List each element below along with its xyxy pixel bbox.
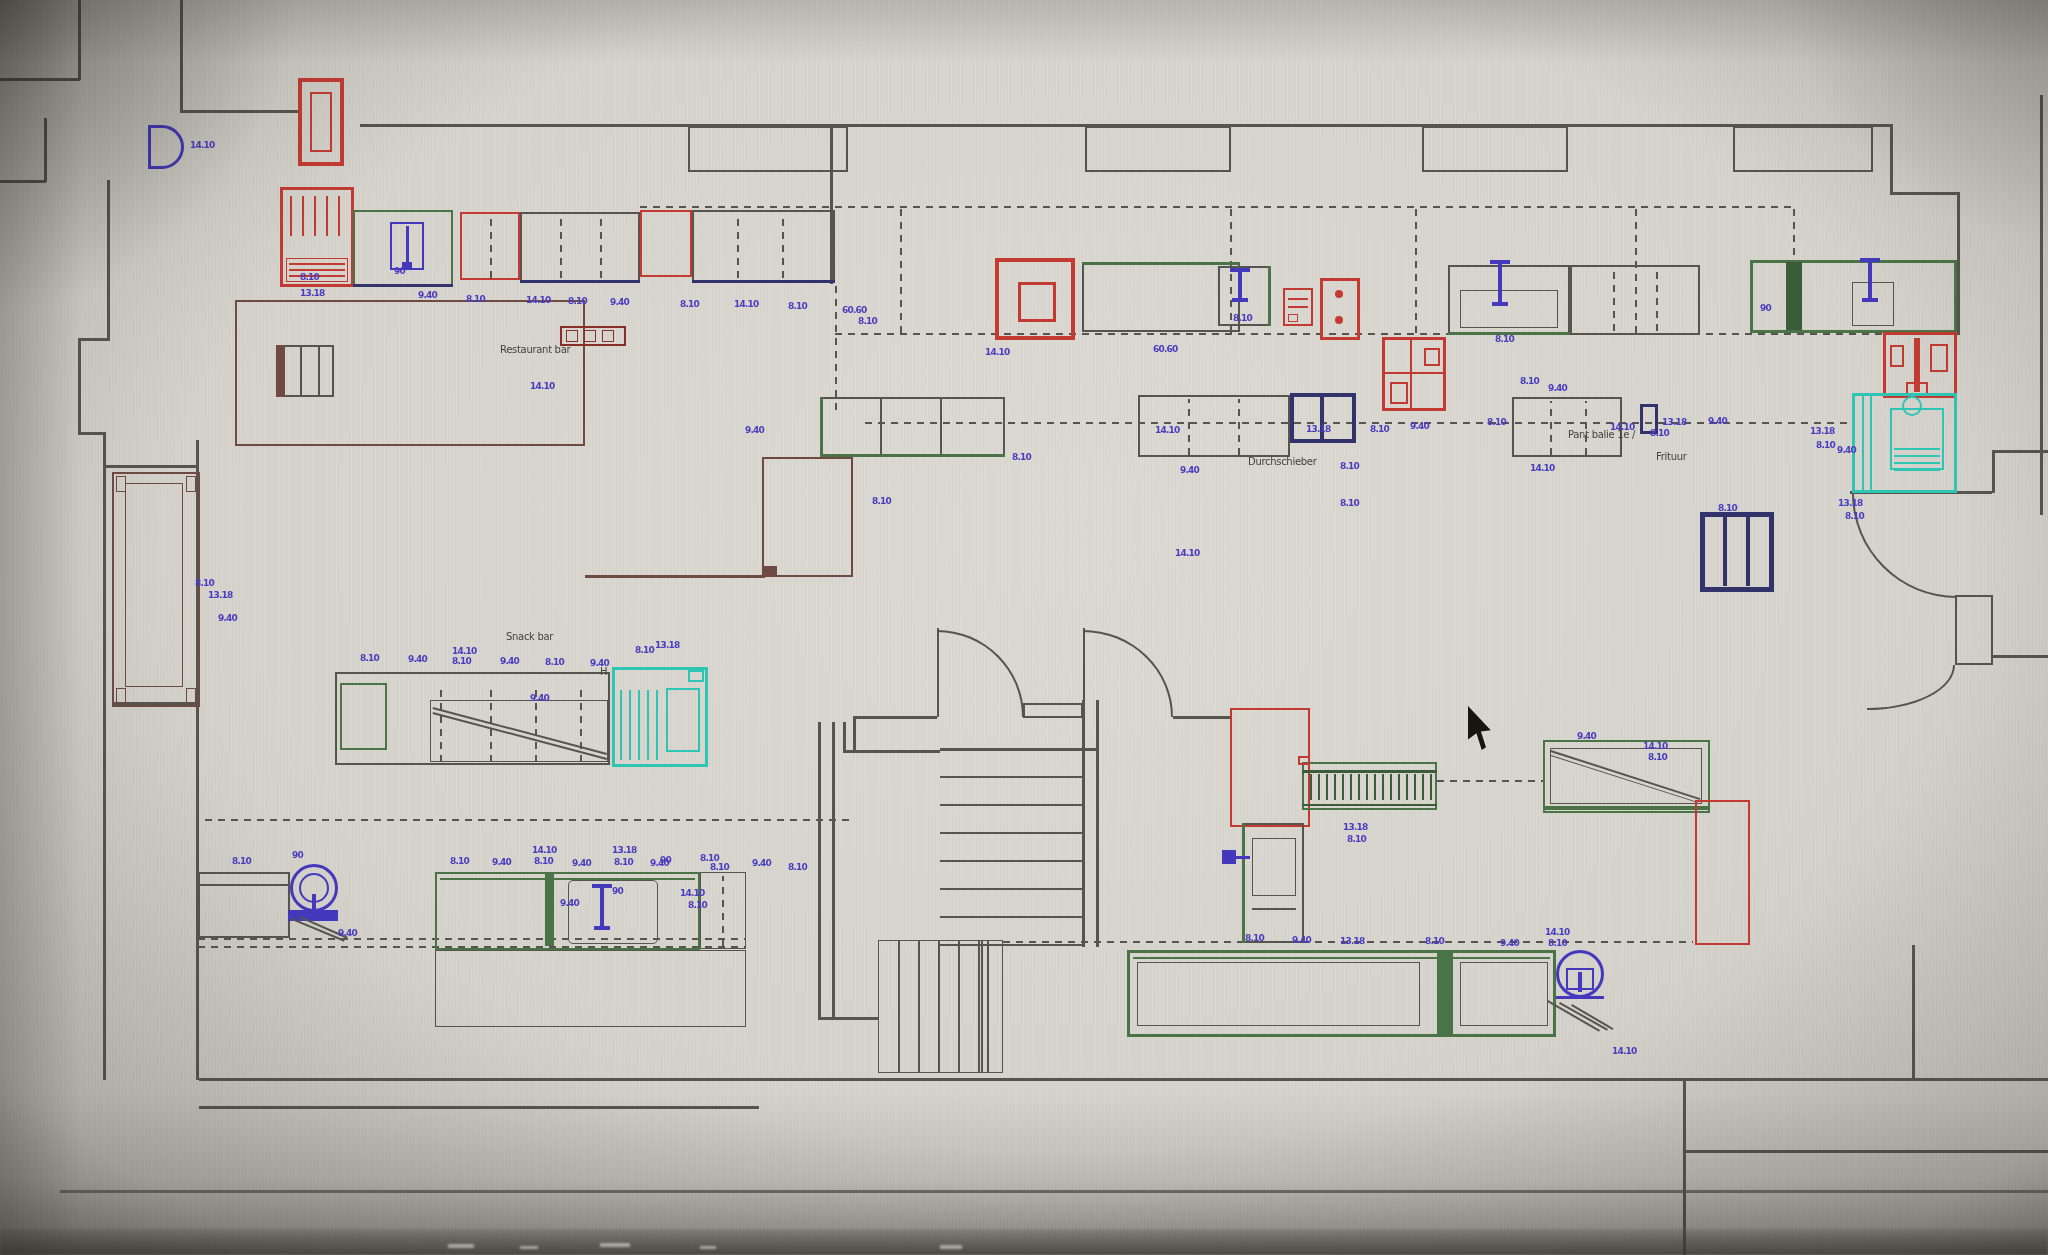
kettle-grill xyxy=(1894,469,1940,471)
dimension-label: 9.40 xyxy=(560,898,579,908)
dimension-label: 9.40 xyxy=(1548,383,1567,393)
wall-stub xyxy=(1023,703,1083,718)
dimension-label: 13.18 xyxy=(1838,498,1862,508)
cabinet-divider xyxy=(782,214,784,278)
stair-treads-lower xyxy=(938,940,940,1073)
sink-inner xyxy=(1852,282,1894,326)
dimension-label: 9.40 xyxy=(338,928,357,938)
wash-box-line xyxy=(1252,908,1296,910)
dimension-label: 8.10 xyxy=(1718,503,1737,513)
pass-grill-bars xyxy=(1374,774,1376,800)
wall xyxy=(843,722,846,750)
wall xyxy=(1173,716,1232,719)
dimension-label: 8.10 xyxy=(1340,498,1359,508)
red-cabinet-grill-lines xyxy=(289,269,345,271)
room-label: Durchschieber xyxy=(1248,456,1316,467)
dimension-label: 8.10 xyxy=(232,856,251,866)
pass-grill-band xyxy=(1302,770,1437,773)
wall xyxy=(843,750,940,753)
red-cabinet-bars xyxy=(290,196,292,236)
dimension-label: 8.10 xyxy=(1816,440,1835,450)
pass-grill-bars xyxy=(1414,774,1416,800)
dimension-label: 14.10 xyxy=(526,295,550,305)
door-fixture xyxy=(148,125,184,169)
wall xyxy=(180,0,183,112)
salamander-line xyxy=(1288,298,1308,300)
pass-grill-bars xyxy=(1422,774,1424,800)
dimension-label: 90 xyxy=(292,850,303,860)
dimension-label: 9.40 xyxy=(745,425,764,435)
kettle-dome xyxy=(1902,396,1922,416)
red-frame xyxy=(1230,708,1310,827)
dimension-label: 9.40 xyxy=(1837,445,1856,455)
room-label: Restaurant bar xyxy=(500,344,570,355)
wall xyxy=(853,716,937,719)
wash-fixture-arm xyxy=(1236,856,1250,859)
screen-bottom-speck xyxy=(940,1245,962,1249)
room-label: H xyxy=(600,666,607,677)
stair-treads-upper xyxy=(940,804,1082,806)
wall xyxy=(1957,192,1960,335)
red-cabinet-bars xyxy=(302,196,304,236)
wall xyxy=(853,716,856,750)
cad-screen-photo: 14.108.1013.189.408.1014.108.109.408.101… xyxy=(0,0,2048,1255)
dimension-label: 9.40 xyxy=(492,857,511,867)
dimension-label: 9.40 xyxy=(752,858,771,868)
cabinet-divider xyxy=(560,216,562,278)
dimension-label: 9.40 xyxy=(500,656,519,666)
kettle-grill xyxy=(1894,462,1940,464)
dimension-label: 9.40 xyxy=(572,858,591,868)
dimension-label: 8.10 xyxy=(466,294,485,304)
mid-counter-dash xyxy=(1550,401,1552,455)
stair-treads-lower xyxy=(918,940,920,1073)
cyan-cooler-stripes xyxy=(620,690,622,760)
hood-dashed xyxy=(835,283,837,410)
dimension-label: 8.10 xyxy=(1487,417,1506,427)
cyan-cooler-stripes xyxy=(647,690,649,760)
wall xyxy=(107,180,110,340)
dimension-label: 8.10 xyxy=(680,299,699,309)
dimension-label: 14.10 xyxy=(1155,425,1179,435)
wall xyxy=(78,338,110,341)
red-cabinet-bars xyxy=(314,196,316,236)
wall xyxy=(1912,945,1915,1080)
lower-table xyxy=(435,950,746,1027)
dimension-label: 8.10 xyxy=(450,856,469,866)
cyan-cooler-stripes xyxy=(656,690,658,760)
dimension-label: 8.10 xyxy=(788,301,807,311)
cyan-cooler-stripes xyxy=(629,690,631,760)
dimension-label: 8.10 xyxy=(360,653,379,663)
register-key xyxy=(602,330,614,342)
screen-bottom-speck xyxy=(448,1244,474,1248)
kettle-body xyxy=(1890,408,1944,470)
dimension-label: 13.18 xyxy=(1306,424,1330,434)
dimension-label: 60.60 xyxy=(842,305,866,315)
side-counter-line xyxy=(198,884,290,886)
cook-block-line xyxy=(1410,340,1412,408)
pass-grill-bars xyxy=(1342,774,1344,800)
dimension-label: 8.10 xyxy=(1425,936,1444,946)
hood-dashed xyxy=(900,206,902,333)
dimension-label: 13.18 xyxy=(1662,417,1686,427)
dimension-label: 8.10 xyxy=(1520,376,1539,386)
hood-dashed xyxy=(640,206,1793,208)
dimension-label: 90 xyxy=(1760,303,1771,313)
salamander-line xyxy=(1288,306,1308,308)
faucet-stem xyxy=(1868,258,1872,302)
wash-fixture xyxy=(1222,850,1236,864)
dimension-label: 90 xyxy=(394,266,405,276)
wall xyxy=(1096,700,1099,947)
dimension-label: 13.18 xyxy=(612,845,636,855)
dimension-label: 13.18 xyxy=(1340,936,1364,946)
stair-stringer xyxy=(987,940,989,1073)
dimension-label: 13.18 xyxy=(1810,426,1834,436)
kettle-rail xyxy=(1862,395,1864,491)
slider-bar xyxy=(1723,516,1727,586)
wall xyxy=(818,1017,878,1020)
counter-green-edge xyxy=(1082,262,1240,265)
wall xyxy=(0,78,80,81)
wall xyxy=(1082,700,1085,947)
stair-treads-lower xyxy=(958,940,960,1073)
green-counter-div xyxy=(545,874,554,946)
side-counter xyxy=(198,872,290,938)
kitchen-dashed xyxy=(865,422,1850,424)
bottom-green-inner xyxy=(1137,962,1420,1026)
pass-grill-bars xyxy=(1310,774,1312,800)
cabinet-row xyxy=(1570,265,1700,335)
lift-cap xyxy=(186,688,196,704)
piano-edge xyxy=(276,345,285,397)
mixer-circle-base xyxy=(1556,996,1604,999)
wash-box-green xyxy=(1242,823,1245,943)
faucet-base xyxy=(1232,298,1248,302)
dimension-label: 8.10 xyxy=(700,853,719,863)
door-arc xyxy=(1867,665,1955,710)
boiler-stem xyxy=(312,894,316,912)
dimension-label: 14.10 xyxy=(1530,463,1554,473)
counter xyxy=(1082,262,1240,332)
dimension-label: 8.10 xyxy=(195,578,214,588)
slider-bar xyxy=(1746,516,1750,586)
dimension-label: 9.40 xyxy=(408,654,427,664)
dimension-label: 14.10 xyxy=(1643,741,1667,751)
dimension-label: 8.10 xyxy=(1245,933,1264,943)
pass-grill-bars xyxy=(1350,774,1352,800)
wash-box-inner xyxy=(1252,838,1296,896)
bottom-green-inner xyxy=(1460,962,1548,1026)
faucet-base xyxy=(1862,298,1878,302)
cabinet-divider xyxy=(600,216,602,278)
mixer-part xyxy=(1890,345,1904,367)
wall xyxy=(103,465,196,468)
salamander-knob xyxy=(1288,314,1298,322)
range-dot xyxy=(1335,290,1343,298)
lift-shaft-inner xyxy=(125,483,183,687)
faucet-cross xyxy=(1490,260,1510,264)
door-arc xyxy=(1852,493,1957,598)
dimension-label: 9.40 xyxy=(1577,731,1596,741)
red-unit-divider xyxy=(490,216,492,278)
stair-treads-upper xyxy=(940,888,1082,890)
wall-bottom xyxy=(199,1078,2048,1081)
wall xyxy=(1890,124,1893,194)
stair-top-edge xyxy=(940,748,1097,751)
bottom-green-div xyxy=(1437,952,1453,1035)
dimension-label: 9.40 xyxy=(610,297,629,307)
dimension-label: 13.18 xyxy=(1343,822,1367,832)
dimension-label: 14.10 xyxy=(1545,927,1569,937)
dimension-label: 14.10 xyxy=(985,347,1009,357)
screen-bottom-speck xyxy=(600,1243,630,1247)
dimension-label: 8.10 xyxy=(1347,834,1366,844)
faucet-base xyxy=(594,926,610,930)
door-arc xyxy=(1083,630,1173,717)
dimension-label: 9.40 xyxy=(1500,938,1519,948)
dimension-label: 8.10 xyxy=(635,645,654,655)
counter-inner xyxy=(1460,290,1558,328)
diag-counter-band xyxy=(1543,806,1710,810)
wall xyxy=(1683,1150,2048,1153)
column-block-foot xyxy=(763,566,777,577)
pass-grill-bars xyxy=(1398,774,1400,800)
mid-counter-green xyxy=(820,397,823,457)
mid-counter-dash xyxy=(1188,399,1190,455)
faucet-stem xyxy=(600,884,604,930)
wall xyxy=(1993,655,2048,658)
dimension-label: 8.10 xyxy=(1845,511,1864,521)
kettle-grill xyxy=(1894,448,1940,450)
mid-counter-dash xyxy=(1585,401,1587,455)
red-cabinet-bars xyxy=(338,196,340,236)
pass-grill-bars xyxy=(1326,774,1328,800)
cabinet-divider xyxy=(1613,269,1615,331)
pilaster xyxy=(688,126,848,172)
wall xyxy=(180,110,302,113)
wall xyxy=(1992,450,2048,453)
room-label: Pant balie 1e / xyxy=(1568,429,1635,440)
lift-cap xyxy=(116,688,126,704)
dimension-label: 8.10 xyxy=(452,656,471,666)
stair-treads-upper xyxy=(940,832,1082,834)
hatch-line xyxy=(1559,1002,1608,1030)
wall xyxy=(0,180,46,183)
range-dot xyxy=(1335,316,1343,324)
stair-treads-lower xyxy=(978,940,980,1073)
wall xyxy=(818,722,821,1017)
wall xyxy=(44,118,47,182)
dimension-label: 8.10 xyxy=(300,272,319,282)
lift-cap xyxy=(116,476,126,492)
cook-block-box xyxy=(1390,382,1408,404)
dimension-label: 8.10 xyxy=(1340,461,1359,471)
mid-counter xyxy=(820,397,1005,457)
cabinet-row xyxy=(520,212,640,282)
stove-block-inner xyxy=(1018,282,1056,322)
wall xyxy=(1683,1080,1686,1255)
cyan-cooler-knob xyxy=(688,670,704,682)
column-block xyxy=(762,457,853,577)
cook-block-box xyxy=(1424,348,1440,366)
dimension-label: 9.40 xyxy=(1292,935,1311,945)
dimension-label: 13.18 xyxy=(208,590,232,600)
cabinet-divider xyxy=(1656,269,1658,331)
mid-counter-dash xyxy=(1238,399,1240,455)
mixer-circle-stem xyxy=(1578,972,1582,992)
wall xyxy=(78,338,81,434)
dimension-label: 8.10 xyxy=(1370,424,1389,434)
kettle-rail xyxy=(1870,395,1872,491)
screen-bottom-speck xyxy=(700,1246,716,1249)
wall-restaurant-edge xyxy=(585,575,765,578)
dimension-label: 9.40 xyxy=(418,290,437,300)
dimension-label: 8.10 xyxy=(1495,334,1514,344)
pass-grill-bars xyxy=(1366,774,1368,800)
mid-counter-div xyxy=(940,399,942,455)
kettle-grill xyxy=(1894,455,1940,457)
dimension-label: 9.40 xyxy=(1180,465,1199,475)
wall xyxy=(78,432,105,435)
pass-grill-band xyxy=(1302,804,1437,806)
faucet-cross xyxy=(1860,258,1880,262)
faucet-cross xyxy=(592,884,612,888)
dimension-label: 14.10 xyxy=(452,646,476,656)
sink-green-edge xyxy=(1268,266,1271,326)
counter-divider-block xyxy=(1786,262,1802,330)
faucet-cross xyxy=(1230,268,1250,272)
wall-bottom xyxy=(199,1106,759,1109)
faucet-base xyxy=(1492,302,1508,306)
stair-treads-upper xyxy=(940,776,1082,778)
dimension-label: 8.10 xyxy=(568,296,587,306)
range-unit xyxy=(1320,278,1360,340)
pass-grill-bars xyxy=(1382,774,1384,800)
pass-grill-mark xyxy=(1298,756,1310,765)
pass-grill-bars xyxy=(1358,774,1360,800)
wall xyxy=(78,0,81,80)
pass-grill-bars xyxy=(1406,774,1408,800)
dimension-label: 8.10 xyxy=(688,900,707,910)
pilaster xyxy=(1085,126,1231,172)
dimension-label: 14.10 xyxy=(734,299,758,309)
green-counter-band xyxy=(440,878,695,880)
dimension-label: 9.40 xyxy=(1708,416,1727,426)
dimension-label: 60.60 xyxy=(1153,344,1177,354)
pass-grill-bars xyxy=(1430,774,1432,800)
cyan-cooler-door xyxy=(666,688,700,752)
red-cabinet-grill-lines xyxy=(289,263,345,265)
pass-grill-bars xyxy=(1318,774,1320,800)
dimension-label: 8.10 xyxy=(1548,938,1567,948)
faucet-stem xyxy=(1238,268,1242,302)
cabinet-navy-edge xyxy=(520,280,640,283)
bar-green-box xyxy=(340,683,387,750)
dimension-label: 9.40 xyxy=(650,858,669,868)
pilaster xyxy=(1422,126,1568,172)
mid-counter xyxy=(1512,397,1622,457)
cyan-cooler-stripes xyxy=(638,690,640,760)
dimension-label: 8.10 xyxy=(1650,428,1669,438)
dimension-label: 8.10 xyxy=(614,857,633,867)
red-tall-frame xyxy=(1695,800,1750,945)
faucet-stem xyxy=(1498,260,1502,306)
room-label: Frituur xyxy=(1656,451,1687,462)
red-unit xyxy=(640,210,692,277)
pass-dashed xyxy=(1437,780,1543,782)
screen-edge-line xyxy=(60,1190,2048,1193)
dimension-label: 9.40 xyxy=(218,613,237,623)
dimension-label: 90 xyxy=(612,886,623,896)
dimension-label: 8.10 xyxy=(788,862,807,872)
red-cabinet-bars xyxy=(326,196,328,236)
dimension-label: 14.10 xyxy=(530,381,554,391)
wall xyxy=(1890,192,1957,195)
wall xyxy=(103,432,106,1080)
dimension-label: 8.10 xyxy=(872,496,891,506)
dimension-label: 14.10 xyxy=(1612,1046,1636,1056)
mixer-part xyxy=(1930,344,1948,372)
register-key xyxy=(584,330,596,342)
dimension-label: 13.18 xyxy=(300,288,324,298)
dimension-label: 9.40 xyxy=(1410,421,1429,431)
dimension-label: 14.10 xyxy=(190,140,214,150)
stair-box-lower xyxy=(878,940,1003,1073)
pass-grill-bars xyxy=(1390,774,1392,800)
hood-dashed xyxy=(1415,206,1417,333)
bottom-green-band xyxy=(1133,957,1550,959)
register-key xyxy=(566,330,578,342)
stair-treads-upper xyxy=(940,860,1082,862)
dimension-label: 13.18 xyxy=(655,640,679,650)
red-unit-tall-inner xyxy=(310,92,332,152)
stair-treads-upper xyxy=(940,916,1082,918)
sink-drop-line xyxy=(406,226,409,264)
dimension-label: 14.10 xyxy=(532,845,556,855)
cabinet-row xyxy=(692,210,835,282)
lift-cap xyxy=(186,476,196,492)
room-label: Snack bar xyxy=(506,631,553,642)
stair-stringer xyxy=(981,940,983,1073)
dimension-label: 8.10 xyxy=(534,856,553,866)
dimension-label: 9.40 xyxy=(530,693,549,703)
pilaster xyxy=(1733,126,1873,172)
dimension-label: 14.10 xyxy=(680,888,704,898)
wall xyxy=(1992,450,1995,493)
floor-plan-canvas: 14.108.1013.189.408.1014.108.109.408.101… xyxy=(0,0,2048,1255)
dimension-label: 8.10 xyxy=(1233,313,1252,323)
door-arc xyxy=(937,630,1024,717)
bar-dashed xyxy=(205,819,855,821)
dimension-label: 14.10 xyxy=(1175,548,1199,558)
pass-grill-bars xyxy=(1334,774,1336,800)
dimension-label: 8.10 xyxy=(1012,452,1031,462)
dimension-label: 8.10 xyxy=(545,657,564,667)
dimension-label: 8.10 xyxy=(710,862,729,872)
cabinet-divider xyxy=(737,214,739,278)
cook-block-line xyxy=(1385,372,1443,374)
mid-counter-div xyxy=(880,399,882,455)
piano-line xyxy=(318,347,320,395)
gray-cabinet-dash xyxy=(722,876,724,946)
dimension-label: 8.10 xyxy=(1648,752,1667,762)
stair-treads-lower xyxy=(898,940,900,1073)
screen-bottom-speck xyxy=(520,1246,538,1249)
piano-line xyxy=(300,347,302,395)
counter-green-navy-edge xyxy=(353,284,453,287)
